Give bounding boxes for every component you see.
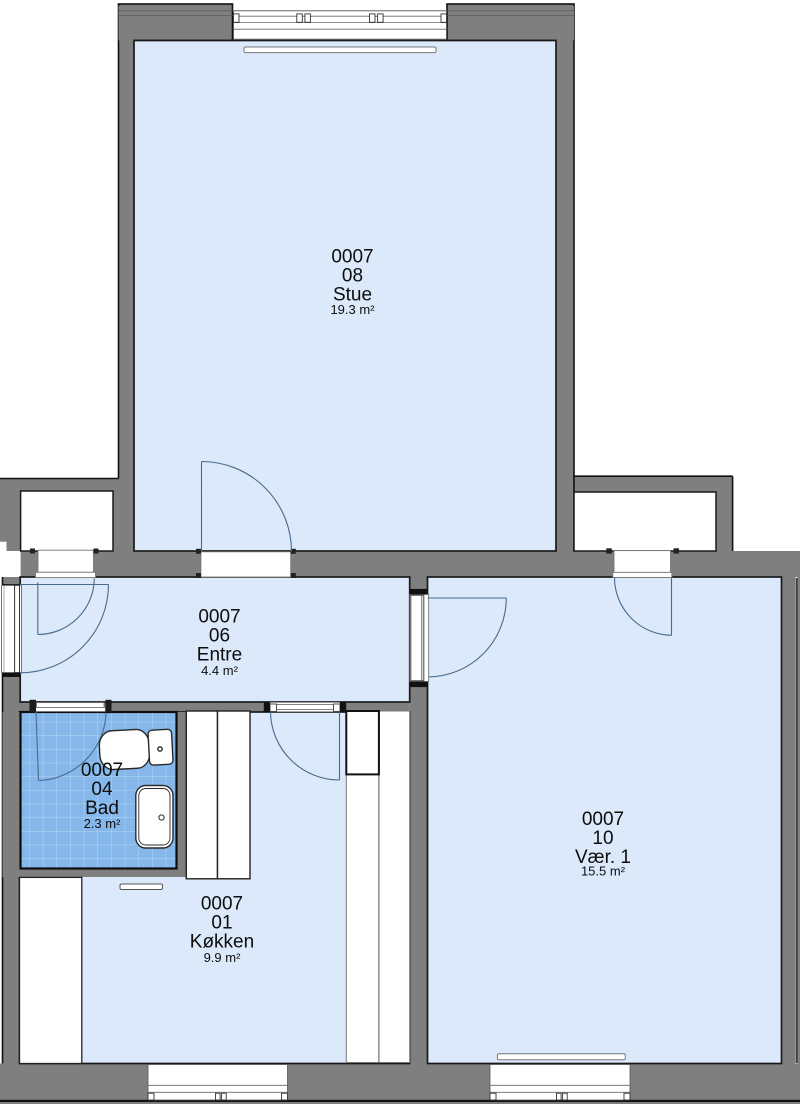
- svg-text:15.5 m²: 15.5 m²: [581, 864, 626, 879]
- svg-text:19.3 m²: 19.3 m²: [330, 302, 375, 317]
- svg-text:0007: 0007: [201, 894, 243, 915]
- svg-text:0007: 0007: [81, 760, 123, 781]
- svg-text:04: 04: [91, 779, 113, 800]
- svg-text:0007: 0007: [582, 809, 624, 830]
- svg-text:4.4 m²: 4.4 m²: [201, 663, 239, 678]
- svg-text:0007: 0007: [331, 246, 373, 267]
- svg-text:0007: 0007: [198, 606, 240, 627]
- svg-text:9.9 m²: 9.9 m²: [204, 950, 242, 965]
- svg-text:2.3 m²: 2.3 m²: [84, 816, 122, 831]
